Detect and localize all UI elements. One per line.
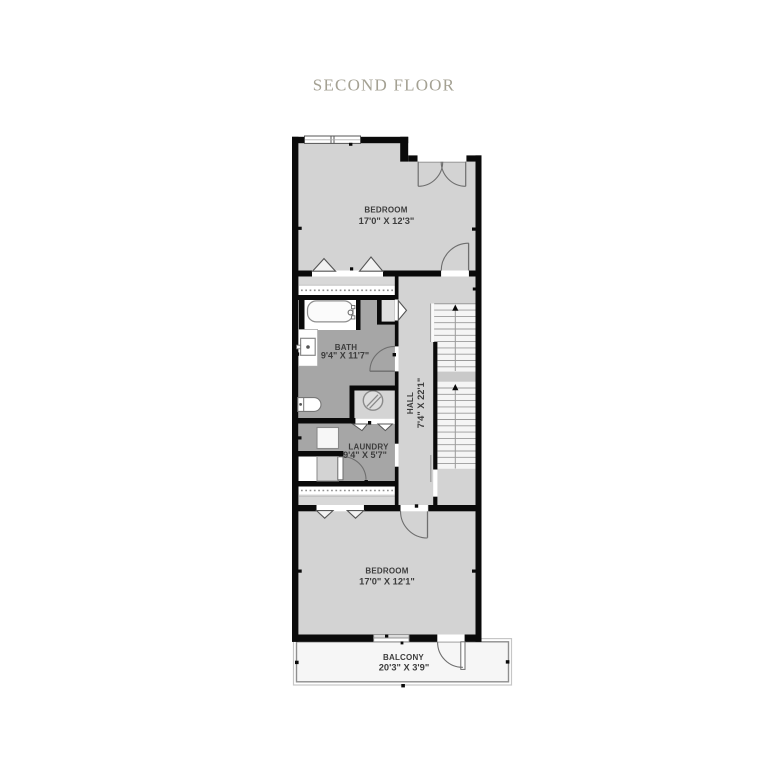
svg-text:HALL: HALL bbox=[406, 392, 415, 414]
svg-text:BEDROOM: BEDROOM bbox=[364, 206, 407, 215]
svg-text:SECOND FLOOR: SECOND FLOOR bbox=[313, 76, 455, 95]
svg-text:9'4" X 11'7": 9'4" X 11'7" bbox=[321, 351, 369, 361]
svg-text:17'0" X 12'1": 17'0" X 12'1" bbox=[359, 577, 415, 587]
svg-text:7'4" X 22'1": 7'4" X 22'1" bbox=[416, 378, 426, 428]
svg-text:BEDROOM: BEDROOM bbox=[365, 567, 408, 576]
svg-text:20'3" X 3'9": 20'3" X 3'9" bbox=[379, 663, 429, 673]
svg-text:9'4" X 5'7": 9'4" X 5'7" bbox=[343, 450, 387, 460]
svg-text:BALCONY: BALCONY bbox=[383, 653, 424, 662]
svg-text:17'0" X 12'3": 17'0" X 12'3" bbox=[359, 216, 415, 226]
